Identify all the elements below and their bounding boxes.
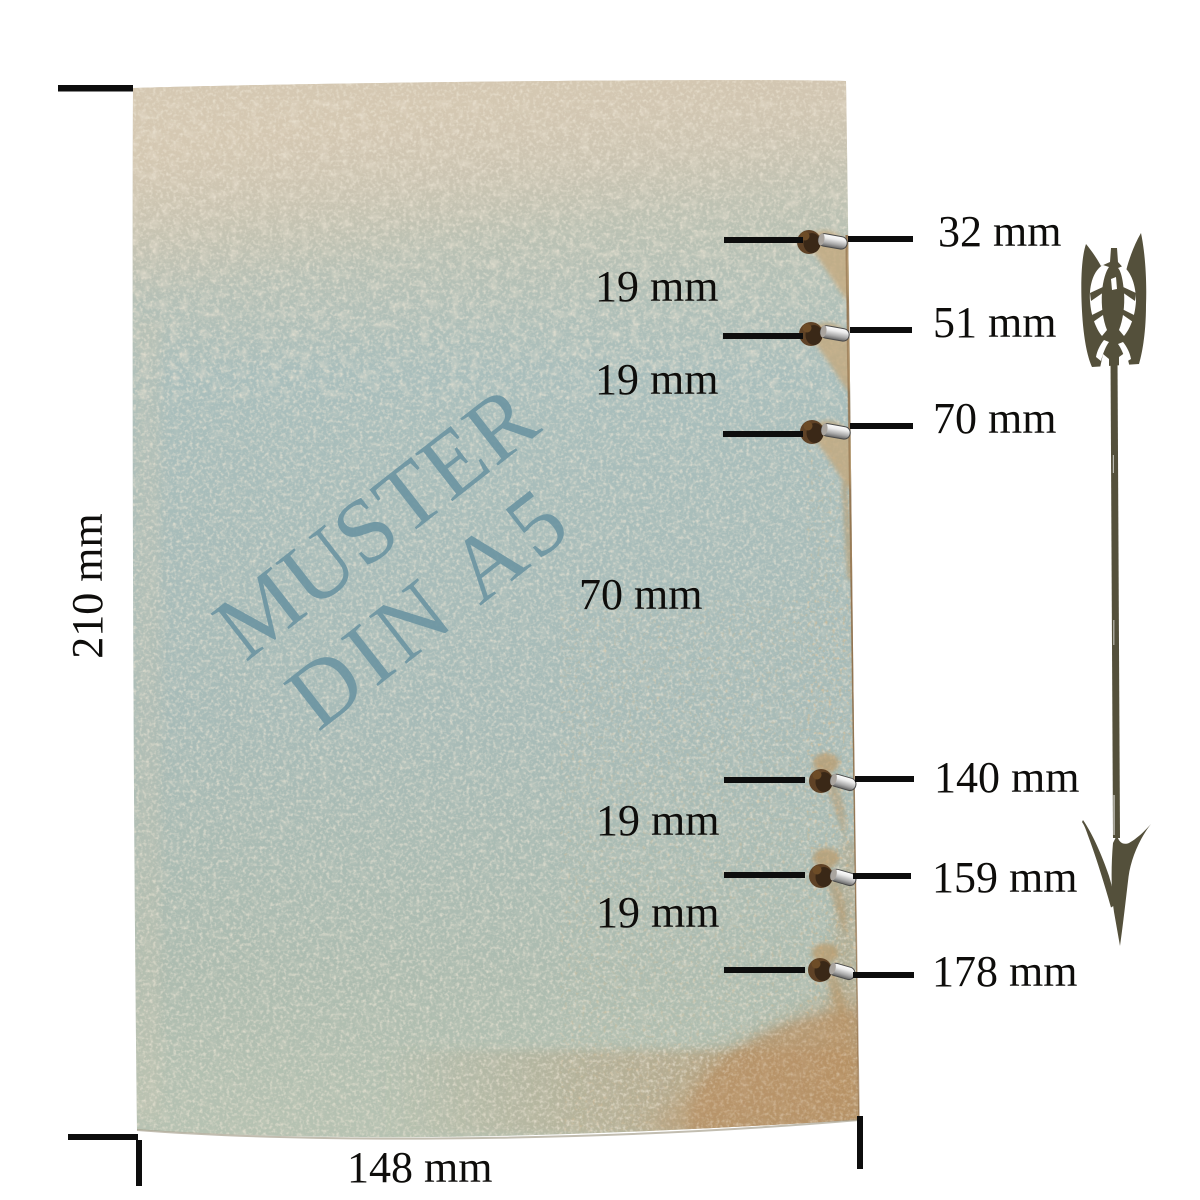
svg-text:178 mm: 178 mm — [932, 947, 1077, 996]
svg-text:140 mm: 140 mm — [934, 753, 1079, 802]
svg-text:19 mm: 19 mm — [596, 888, 719, 937]
svg-text:148 mm: 148 mm — [347, 1143, 492, 1192]
svg-text:159 mm: 159 mm — [932, 853, 1077, 902]
svg-text:51 mm: 51 mm — [933, 298, 1056, 347]
svg-text:32 mm: 32 mm — [938, 207, 1061, 256]
svg-text:70 mm: 70 mm — [933, 394, 1056, 443]
svg-text:19 mm: 19 mm — [596, 796, 719, 845]
svg-text:19 mm: 19 mm — [595, 355, 718, 404]
svg-text:70 mm: 70 mm — [579, 570, 702, 619]
svg-text:210 mm: 210 mm — [63, 513, 112, 658]
svg-text:19 mm: 19 mm — [595, 262, 718, 311]
